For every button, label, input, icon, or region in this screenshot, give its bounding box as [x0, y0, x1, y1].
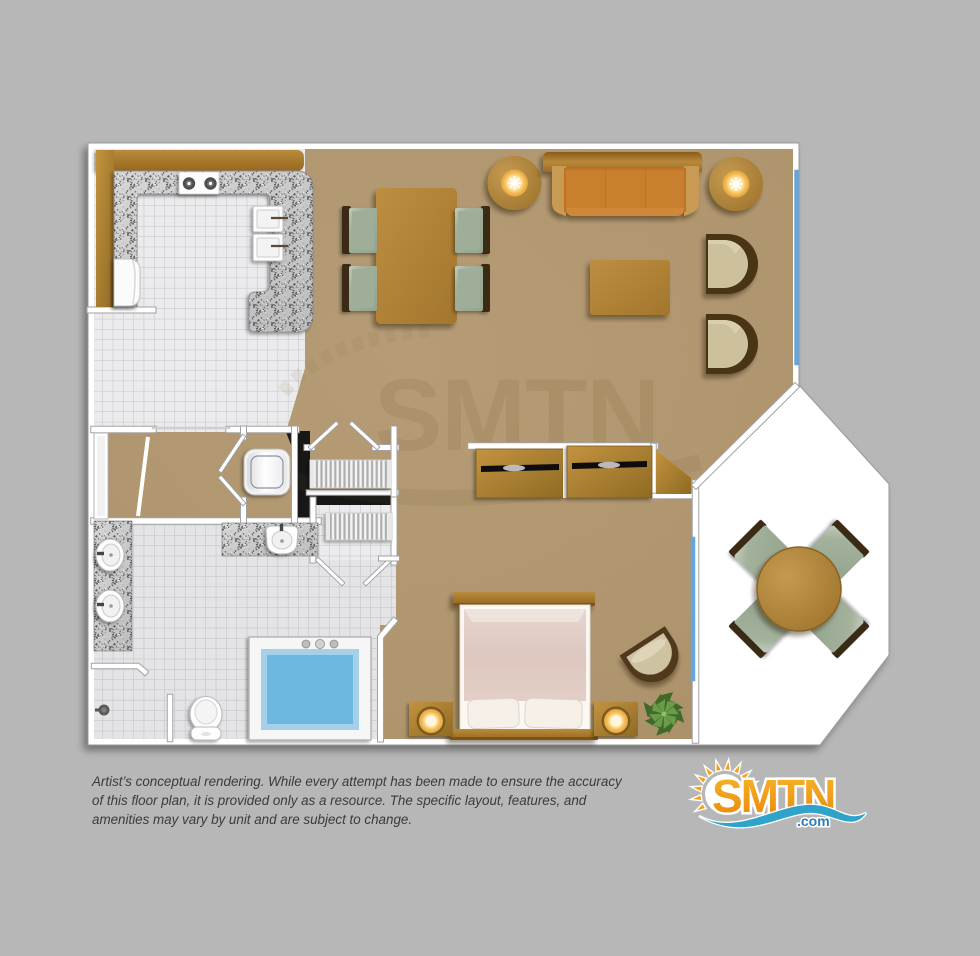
svg-text:of this floor plan, it is prov: of this floor plan, it is provided only …: [92, 793, 587, 808]
svg-text:amenities may vary by unit and: amenities may vary by unit and are subje…: [92, 812, 412, 827]
svg-text:.com: .com: [797, 813, 830, 829]
svg-text:Artist’s conceptual rendering.: Artist’s conceptual rendering. While eve…: [91, 774, 623, 789]
